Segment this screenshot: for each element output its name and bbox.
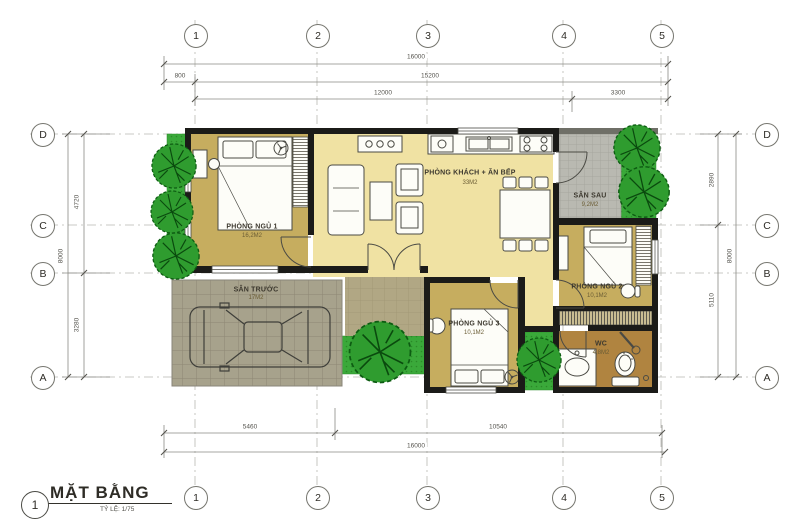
dimension-label: 10540: [487, 424, 509, 431]
dimension-label: 16000: [405, 54, 427, 61]
tv-console-icon: [358, 136, 402, 152]
dimension-label: 8000: [727, 247, 734, 265]
drawing-scale: TỶ LỆ: 1/75: [100, 506, 134, 513]
grid-bubble-col-2-bottom: 2: [306, 486, 330, 510]
tree-icon: [350, 322, 411, 383]
dimension-label: 3280: [74, 316, 81, 334]
grid-bubble-col-4-bottom: 4: [552, 486, 576, 510]
room-label-wc: WC: [595, 341, 607, 348]
room-area-phong-khach: 33M2: [462, 180, 477, 186]
tree-icon: [614, 125, 660, 171]
tree-icon: [619, 167, 669, 217]
laundry-shelf-hatch: [559, 311, 652, 325]
grid-bubble-col-3-top: 3: [416, 24, 440, 48]
grid-bubble-col-4-top: 4: [552, 24, 576, 48]
grid-bubble-row-b-left: B: [31, 262, 55, 286]
grid-bubble-col-1-bottom: 1: [184, 486, 208, 510]
room-label-phong-khach: PHÒNG KHÁCH + ĂN BẾP: [424, 170, 515, 177]
grid-bubble-col-3-bottom: 3: [416, 486, 440, 510]
room-label-san-truoc: SÂN TRƯỚC: [234, 287, 279, 294]
plan-drawing: [0, 0, 800, 519]
chair-icon: [621, 284, 635, 298]
room-area-san-sau: 9,2M2: [582, 202, 599, 208]
room-area-wc: 4,8M2: [593, 350, 610, 356]
dimension-label: 5110: [709, 291, 716, 309]
dimension-label: 800: [173, 73, 188, 80]
dimension-label: 4720: [74, 193, 81, 211]
grid-bubble-col-5-top: 5: [650, 24, 674, 48]
dining-set-icon: [500, 177, 550, 251]
tree-icon: [153, 233, 199, 279]
corridor-floor: [525, 273, 553, 332]
wardrobe-icon: [293, 137, 308, 207]
grid-bubble-col-5-bottom: 5: [650, 486, 674, 510]
title-underline: [34, 503, 172, 504]
tree-icon: [151, 191, 193, 233]
window: [212, 266, 278, 273]
dimension-label: 2890: [709, 171, 716, 189]
grid-bubble-row-a-right: A: [755, 366, 779, 390]
dimension-label: 8000: [58, 247, 65, 265]
window: [652, 240, 658, 274]
dimension-label: 15200: [419, 73, 441, 80]
room-area-phong-ngu-3: 10,1M2: [464, 330, 484, 336]
room-area-phong-ngu-1: 16,2M2: [242, 233, 262, 239]
window: [458, 128, 518, 134]
grid-bubble-row-b-right: B: [755, 262, 779, 286]
sofa-icon: [328, 165, 364, 235]
dimension-label: 3300: [609, 90, 627, 97]
drawing-number-bubble: 1: [21, 491, 49, 519]
dimension-label: 16000: [405, 443, 427, 450]
grid-bubble-row-d-right: D: [755, 123, 779, 147]
room-label-phong-ngu-2: PHÒNG NGỦ 2: [571, 284, 622, 291]
room-label-phong-ngu-1: PHÒNG NGỦ 1: [226, 224, 277, 231]
grid-bubble-row-a-left: A: [31, 366, 55, 390]
tree-icon: [517, 338, 561, 382]
grid-bubble-col-1-top: 1: [184, 24, 208, 48]
grid-bubble-row-d-left: D: [31, 123, 55, 147]
room-area-san-truoc: 17M2: [248, 295, 263, 301]
dimension-label: 12000: [372, 90, 394, 97]
floor-plan-canvas: 1 2 3 4 5 1 2 3 4 5 D C B A D C B A 1600…: [0, 0, 800, 519]
dimension-label: 5460: [241, 424, 259, 431]
room-label-san-sau: SÂN SAU: [574, 193, 607, 200]
coffee-table-icon: [370, 182, 392, 220]
grid-bubble-row-c-left: C: [31, 214, 55, 238]
wardrobe-icon: [636, 226, 651, 285]
room-label-phong-ngu-3: PHÒNG NGỦ 3: [448, 321, 499, 328]
stool-icon: [209, 159, 220, 170]
grid-bubble-col-2-top: 2: [306, 24, 330, 48]
tree-icon: [152, 144, 196, 188]
page-title: MẶT BẰNG: [50, 483, 150, 503]
grid-bubble-row-c-right: C: [755, 214, 779, 238]
room-area-phong-ngu-2: 10,1M2: [587, 293, 607, 299]
window: [446, 387, 496, 393]
